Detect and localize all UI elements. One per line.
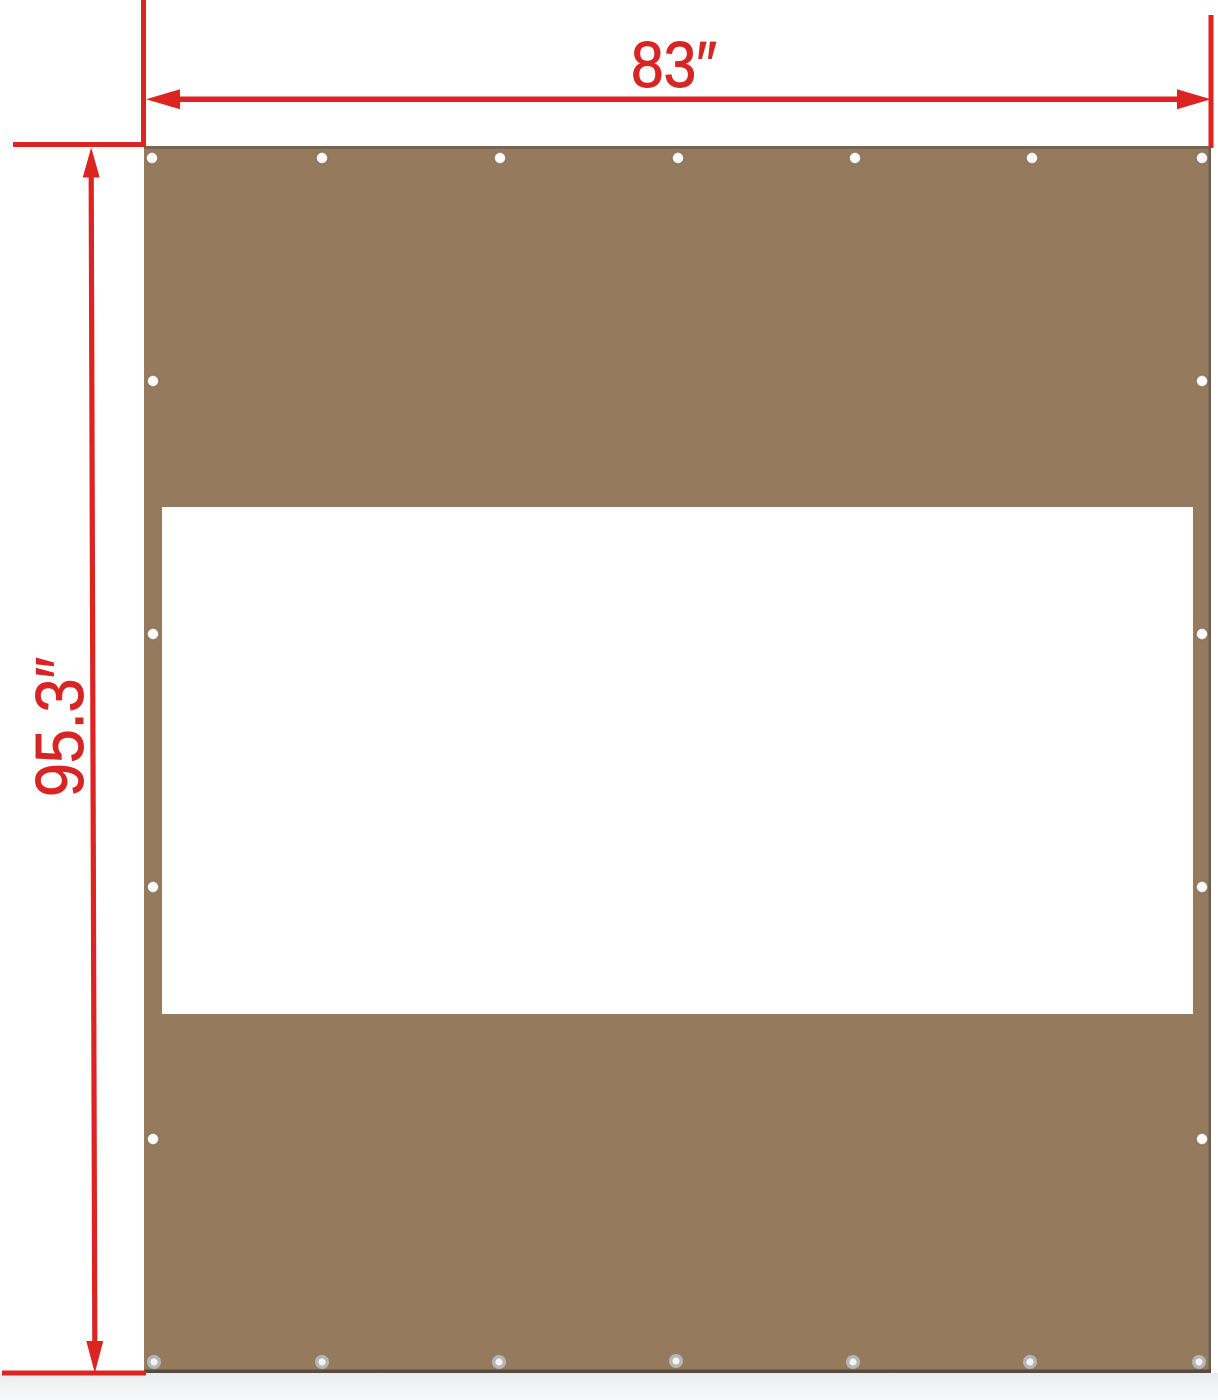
svg-text:83″: 83″ [631,28,717,101]
svg-text:95.3″: 95.3″ [22,657,98,797]
